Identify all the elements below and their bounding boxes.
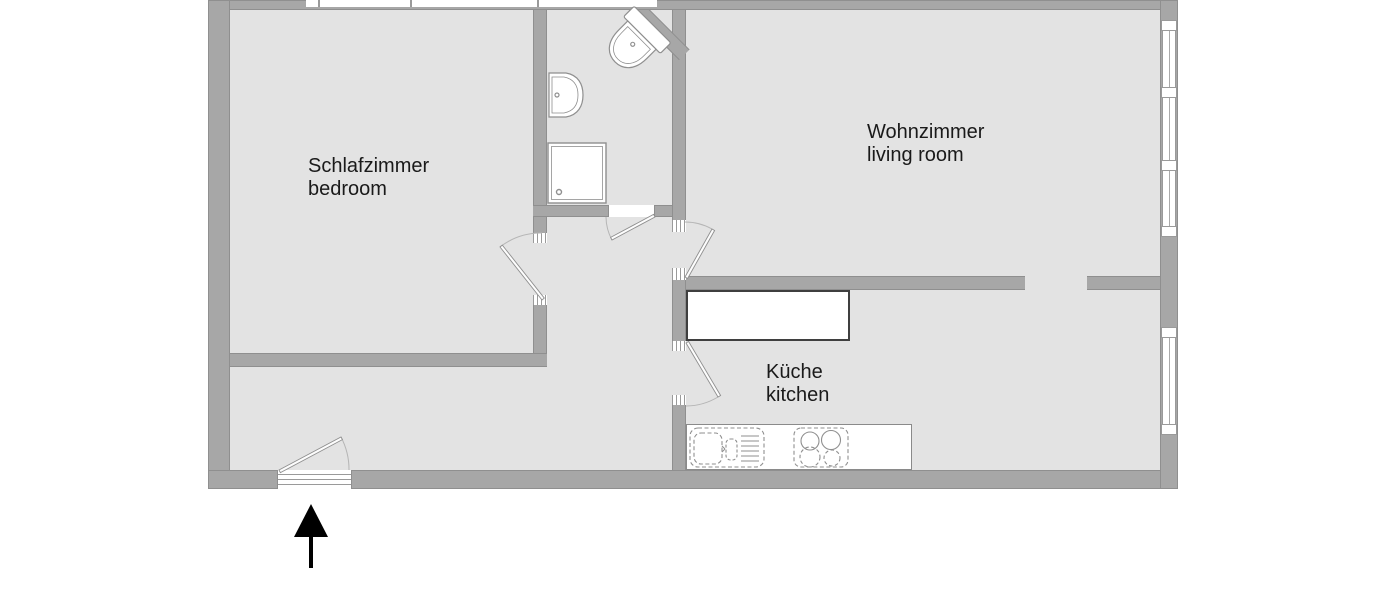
room-name-en: living room [867,144,984,167]
kitchen-door-jamb-bottom [672,395,686,405]
room-name-de: Küche [766,361,829,384]
wall-left [208,0,230,489]
living-door-jamb-top [672,220,686,232]
bedroom-door-jamb-top [533,233,547,243]
bathroom-door-threshold [608,205,655,217]
window-mullion [1161,226,1177,237]
window-mullion-tick [537,0,539,7]
living-door-jamb-bottom [672,268,686,280]
floor-plan: Schlafzimmer bedroom Wohnzimmer living r… [0,0,1400,600]
wall-hall-living-b [672,280,686,341]
window-mullion-tick [318,0,320,7]
window-mullion [1161,327,1177,338]
room-label-living-room: Wohnzimmer living room [867,121,984,167]
bedroom-door-jamb-bottom [533,295,547,305]
wall-kitchen-living-left [686,276,1025,290]
window-mullion-tick [410,0,412,7]
bedroom-window [306,0,657,7]
room-name-de: Wohnzimmer [867,121,984,144]
room-name-en: bedroom [308,178,429,201]
wall-bedroom-bathroom [533,0,547,233]
living-room-window [1162,20,1176,236]
wall-hall-kitchen-c [672,405,686,470]
window-mullion [1161,87,1177,98]
wall-bathroom-bottom-right [655,205,672,217]
wall-bottom [208,470,1178,489]
room-name-en: kitchen [766,384,829,407]
entrance-arrow-head [294,504,328,537]
window-mullion [1161,20,1177,31]
window-mullion [1161,424,1177,435]
room-label-kitchen: Küche kitchen [766,361,829,407]
kitchen-counter-upper [686,290,850,341]
room-label-bedroom: Schlafzimmer bedroom [308,155,429,201]
entrance-door-threshold [277,470,352,489]
kitchen-door-jamb-top [672,341,686,351]
room-name-de: Schlafzimmer [308,155,429,178]
entrance-arrow-stem [309,536,313,568]
kitchen-window [1162,327,1176,434]
wall-kitchen-living-right [1087,276,1160,290]
apartment-floor [230,10,1160,470]
kitchen-counter-lower [686,424,912,470]
window-mullion [1161,160,1177,171]
wall-bedroom-bottom [208,353,547,367]
wall-bathroom-bottom-left [533,205,608,217]
